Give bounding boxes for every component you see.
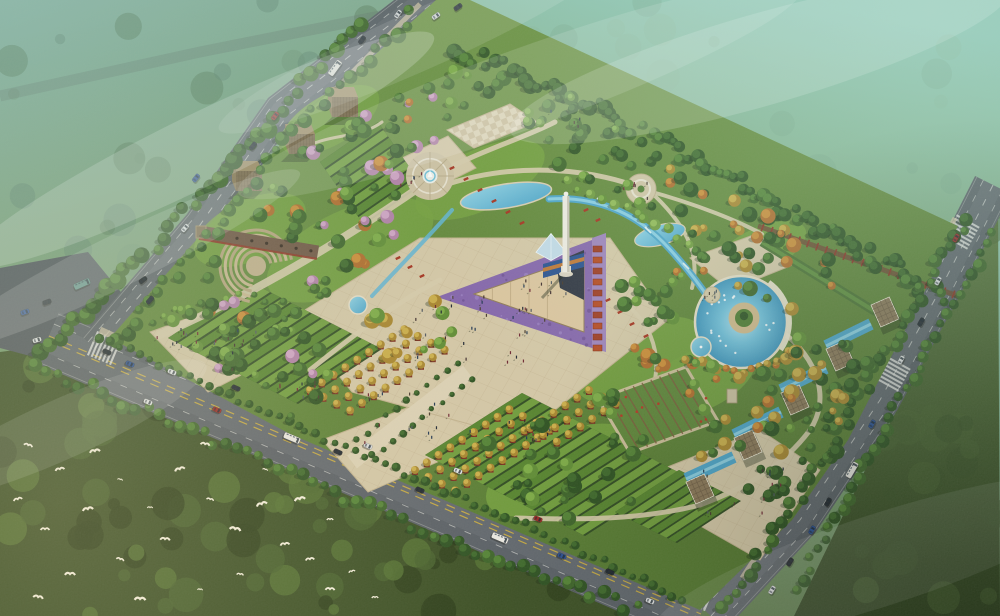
- park-aerial-rendering: [0, 0, 1000, 616]
- rendering-canvas: [0, 0, 1000, 616]
- film-grain: [0, 0, 1000, 616]
